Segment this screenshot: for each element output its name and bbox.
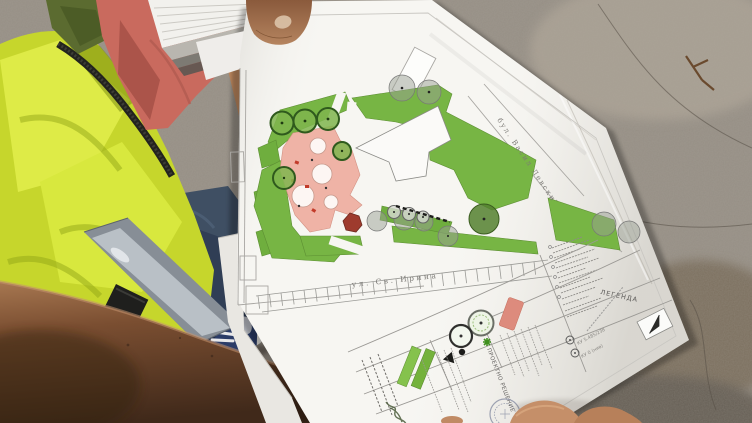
tree-icon <box>592 212 616 236</box>
legend-dot-symbol <box>459 349 465 355</box>
legend-shrub-symbol <box>483 338 491 346</box>
tree-icon <box>367 211 387 231</box>
tree-icon <box>618 221 640 243</box>
construction-site-photo: ул. Св. Ирина бул. Васил Левски ЛЕГЕНДА <box>0 0 752 423</box>
